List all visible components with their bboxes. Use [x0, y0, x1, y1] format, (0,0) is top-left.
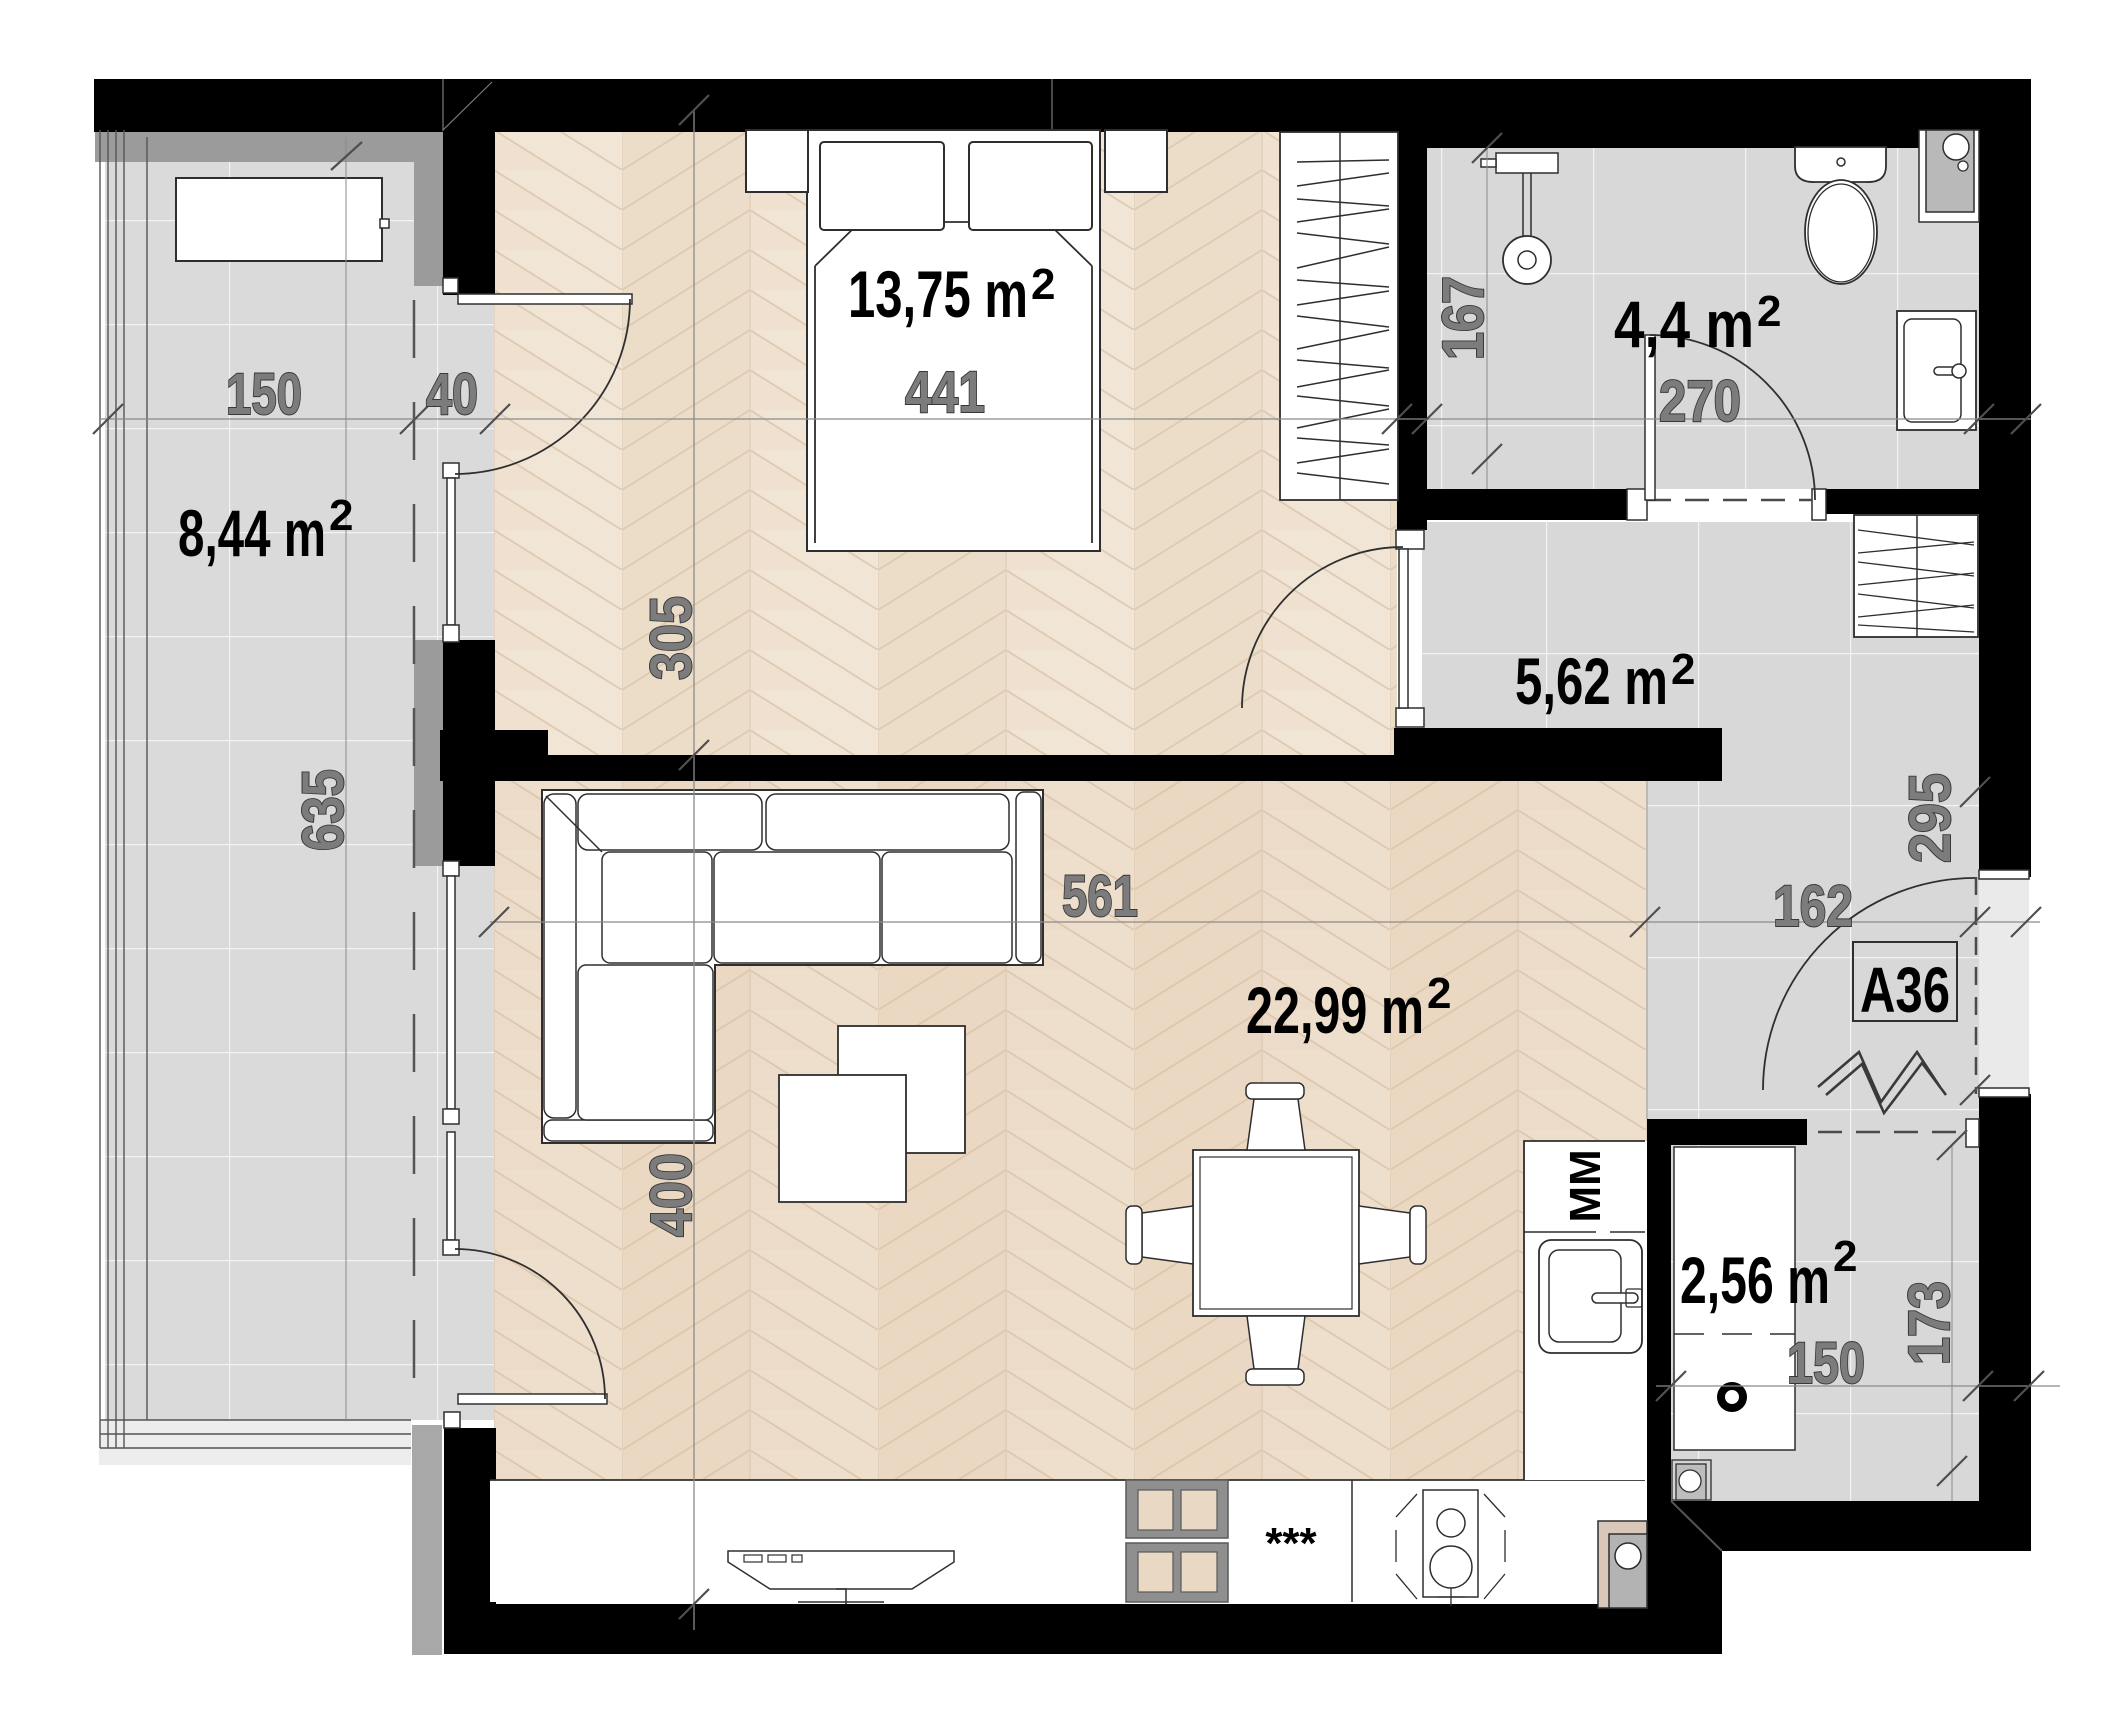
- svg-text:400: 400: [639, 1153, 704, 1237]
- svg-text:4,4 m: 4,4 m: [1614, 287, 1754, 361]
- svg-text:162: 162: [1773, 874, 1853, 939]
- svg-text:5,62 m: 5,62 m: [1515, 644, 1668, 718]
- svg-text:***: ***: [1265, 1519, 1317, 1568]
- svg-text:2: 2: [1671, 645, 1695, 694]
- svg-text:8,44 m: 8,44 m: [178, 496, 326, 570]
- svg-text:MM: MM: [1561, 1149, 1610, 1222]
- svg-text:150: 150: [226, 362, 302, 427]
- svg-text:22,99 m: 22,99 m: [1246, 973, 1424, 1047]
- svg-text:40: 40: [426, 362, 478, 427]
- svg-text:635: 635: [291, 769, 356, 851]
- svg-text:173: 173: [1897, 1281, 1962, 1365]
- svg-text:A36: A36: [1860, 954, 1950, 1026]
- svg-text:270: 270: [1659, 369, 1741, 434]
- svg-text:2: 2: [1031, 260, 1055, 309]
- svg-text:13,75 m: 13,75 m: [848, 257, 1028, 331]
- svg-text:2: 2: [329, 491, 353, 540]
- svg-text:305: 305: [639, 596, 704, 680]
- svg-text:2,56 m: 2,56 m: [1680, 1243, 1830, 1317]
- svg-text:150: 150: [1787, 1331, 1865, 1396]
- svg-text:2: 2: [1427, 969, 1451, 1018]
- svg-text:561: 561: [1062, 864, 1138, 929]
- svg-text:295: 295: [1898, 773, 1963, 863]
- svg-text:2: 2: [1757, 287, 1781, 336]
- svg-text:441: 441: [905, 360, 985, 425]
- svg-text:2: 2: [1833, 1232, 1857, 1281]
- svg-text:167: 167: [1431, 276, 1496, 360]
